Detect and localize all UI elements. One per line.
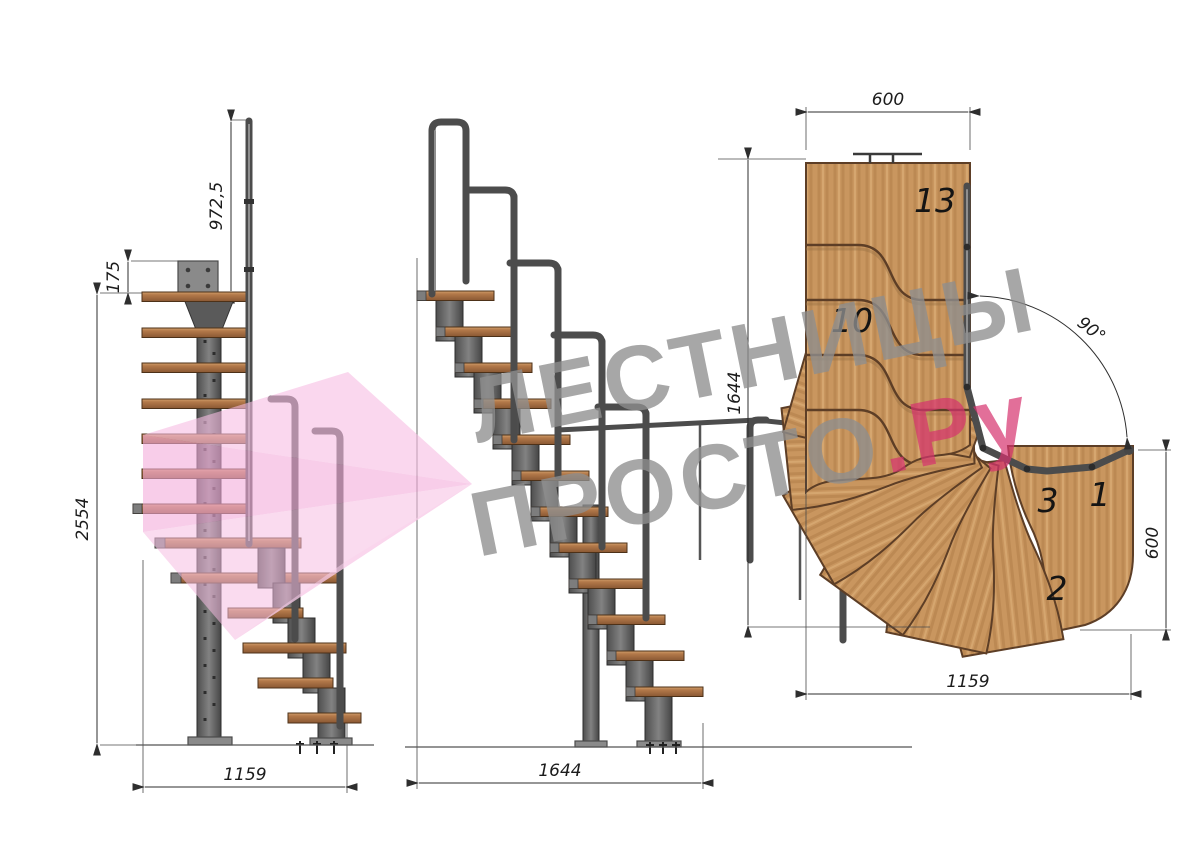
tread <box>142 363 250 373</box>
tread-end-cap <box>569 579 578 589</box>
handrail-segment <box>466 190 514 199</box>
rail-joint <box>244 199 254 204</box>
dim-label: 2554 <box>73 497 93 540</box>
tread <box>243 643 346 653</box>
tread <box>626 687 703 697</box>
staircase-technical-drawing: 972,5 175 2554 1159 <box>0 0 1200 849</box>
rail-joint <box>1089 464 1096 471</box>
post-base-flange <box>188 737 232 745</box>
dim-width: 1644 <box>419 761 701 783</box>
step-label-2: 2 <box>1047 569 1068 608</box>
dim-label: 600 <box>872 90 904 110</box>
dim-label: 972,5 <box>207 182 227 231</box>
dim-label: 90° <box>1073 313 1109 347</box>
wall-mount-plate <box>178 261 218 294</box>
step-label-1: 1 <box>1090 475 1111 514</box>
watermark-arrow-logo <box>143 372 472 640</box>
dim-label: 1159 <box>946 672 989 692</box>
dim-label: 1644 <box>538 761 581 781</box>
tread-end-cap <box>588 615 597 625</box>
tread-end-cap <box>626 687 635 697</box>
drawing-canvas: 972,5 175 2554 1159 <box>0 0 1200 849</box>
module <box>645 695 672 743</box>
tread-end-cap <box>607 651 616 661</box>
dim-label: 175 <box>104 261 124 293</box>
support-base <box>575 741 607 747</box>
dim-plan-top-width: 600 <box>806 90 970 150</box>
tread <box>607 651 684 661</box>
tread <box>288 713 361 723</box>
tread <box>142 399 250 409</box>
step-label-13: 13 <box>914 181 956 220</box>
rail-joint <box>964 244 971 251</box>
tread-end-cap <box>436 327 445 337</box>
wall-bracket <box>853 154 922 163</box>
tread <box>258 678 333 688</box>
dim-plate-offset: 175 <box>104 261 178 293</box>
tread <box>569 579 646 589</box>
dim-label: 1159 <box>223 765 266 785</box>
rail-joint <box>1024 466 1031 473</box>
step-label-3: 3 <box>1038 481 1059 520</box>
tread <box>588 615 665 625</box>
rail-joint <box>244 267 254 272</box>
tread <box>142 328 250 338</box>
dim-label: 600 <box>1143 527 1163 559</box>
tread-end-cap <box>417 291 426 301</box>
tread-end-cap <box>133 504 142 514</box>
handrail-loop <box>432 122 466 294</box>
tread <box>436 327 513 337</box>
dim-total-height: 2554 <box>73 293 150 745</box>
tread <box>142 292 250 302</box>
rail-end-cap <box>1124 445 1134 455</box>
